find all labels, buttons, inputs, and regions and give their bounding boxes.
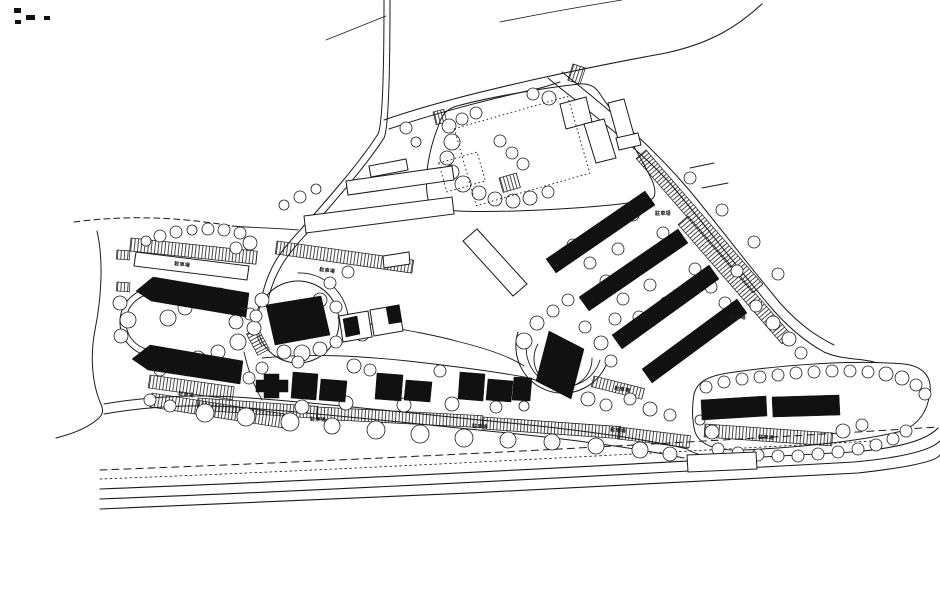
building-row-house-2a bbox=[375, 373, 403, 401]
tree-icon bbox=[256, 362, 268, 374]
tree-icon bbox=[144, 394, 156, 406]
tree-icon bbox=[164, 400, 176, 412]
building-plaza-slab bbox=[266, 296, 330, 345]
building-row-house-4 bbox=[512, 377, 532, 401]
tree-icon bbox=[470, 107, 482, 119]
tree-icon bbox=[442, 119, 456, 133]
tree-icon bbox=[731, 265, 743, 277]
tree-icon bbox=[579, 321, 591, 333]
tree-icon bbox=[862, 366, 874, 378]
tree-icon bbox=[506, 147, 518, 159]
tree-icon bbox=[530, 316, 544, 330]
tree-icon bbox=[187, 225, 197, 235]
tree-icon bbox=[870, 439, 882, 451]
tree-icon bbox=[700, 381, 712, 393]
tree-icon bbox=[544, 434, 560, 450]
tree-icon bbox=[879, 367, 893, 381]
building-row-house-1a bbox=[291, 372, 318, 400]
parking-strip-crosswalk-2 bbox=[568, 64, 586, 84]
tree-icon bbox=[624, 393, 636, 405]
tree-icon bbox=[243, 236, 257, 250]
tree-icon bbox=[736, 373, 748, 385]
tree-icon bbox=[364, 364, 376, 376]
building-row-house-2b bbox=[404, 380, 432, 402]
building-slab-west-1 bbox=[136, 277, 249, 317]
tree-icon bbox=[488, 192, 502, 206]
tree-icon bbox=[519, 401, 529, 411]
tree-icon bbox=[500, 432, 516, 448]
corner-mark bbox=[15, 20, 21, 24]
building-outline-right-small-rect bbox=[687, 452, 757, 472]
tree-icon bbox=[347, 359, 361, 373]
tree-icon bbox=[243, 372, 255, 384]
tree-icon bbox=[490, 401, 502, 413]
tree-icon bbox=[581, 392, 595, 406]
tree-icon bbox=[247, 321, 261, 335]
road-top-left-line bbox=[326, 16, 386, 40]
tree-icon bbox=[218, 224, 230, 236]
building-outline-school-3 bbox=[608, 99, 634, 139]
tree-icon bbox=[750, 300, 762, 312]
tree-icon bbox=[456, 113, 468, 125]
tree-icon bbox=[664, 409, 676, 421]
tree-icon bbox=[716, 204, 728, 216]
building-outline-slab-outline-a bbox=[304, 197, 454, 233]
building-center-block-a bbox=[343, 316, 360, 337]
tree-icon bbox=[772, 450, 784, 462]
tree-icon bbox=[400, 122, 412, 134]
parking-strip-crosswalk-5 bbox=[116, 282, 130, 292]
tree-icon bbox=[632, 442, 648, 458]
tree-icon bbox=[812, 448, 824, 460]
tree-icon bbox=[617, 293, 629, 305]
building-right-slab-2 bbox=[772, 395, 840, 417]
tree-icon bbox=[277, 345, 291, 359]
tree-icon bbox=[250, 310, 262, 322]
tree-icon bbox=[856, 419, 868, 431]
tree-icon bbox=[170, 226, 182, 238]
tree-icon bbox=[772, 369, 784, 381]
tree-icon bbox=[445, 397, 459, 411]
road-ne-upper-line bbox=[500, 0, 622, 22]
tree-icon bbox=[772, 268, 784, 280]
parking-label: 駐車場 bbox=[655, 210, 671, 217]
building-slab-west-2 bbox=[132, 345, 243, 384]
tree-icon bbox=[294, 191, 306, 203]
tree-icon bbox=[643, 402, 657, 416]
tree-icon bbox=[766, 316, 780, 330]
tree-icon bbox=[562, 294, 574, 306]
tree-icon bbox=[594, 336, 608, 350]
tree-icon bbox=[600, 399, 612, 411]
parking-strip-hatch bbox=[568, 64, 586, 84]
tree-icon bbox=[584, 257, 596, 269]
tree-icon bbox=[852, 443, 864, 455]
tree-icon bbox=[113, 296, 127, 310]
parking-label: 駐車場 bbox=[310, 416, 326, 424]
tree-icon bbox=[295, 400, 309, 414]
tree-icon bbox=[411, 425, 429, 443]
tree-icon bbox=[114, 329, 128, 343]
parking-label: 駐車場 bbox=[472, 423, 488, 431]
tree-icon bbox=[748, 236, 760, 248]
tree-icon bbox=[605, 355, 617, 367]
building-point-house bbox=[256, 374, 288, 398]
tree-icon bbox=[160, 310, 176, 326]
building-center-block-b bbox=[386, 305, 402, 324]
tree-icon bbox=[792, 450, 804, 462]
tree-icon bbox=[684, 172, 696, 184]
tree-icon bbox=[229, 315, 243, 329]
tree-icon bbox=[644, 279, 656, 291]
parking-strip-hatch bbox=[499, 173, 520, 192]
tree-icon bbox=[790, 367, 802, 379]
tree-icon bbox=[230, 334, 246, 350]
tree-icon bbox=[230, 242, 242, 254]
tree-icon bbox=[234, 227, 246, 239]
tree-icon bbox=[324, 277, 336, 289]
tree-icon bbox=[919, 388, 931, 400]
tree-icon bbox=[718, 376, 730, 388]
tree-icon bbox=[367, 421, 385, 439]
building-right-slab-1 bbox=[701, 396, 767, 420]
road-west-boundary bbox=[56, 231, 103, 438]
tree-icon bbox=[281, 413, 299, 431]
road-ne-road-b bbox=[562, 72, 834, 345]
tree-icon bbox=[910, 379, 922, 391]
tree-icon bbox=[782, 332, 796, 346]
tree-icon bbox=[154, 230, 166, 242]
tree-icon bbox=[202, 223, 214, 235]
parking-strip-hatch bbox=[116, 282, 130, 292]
tree-icon bbox=[342, 266, 354, 278]
tree-icon bbox=[795, 347, 807, 359]
corner-marks-layer bbox=[14, 8, 50, 24]
tree-icon bbox=[440, 151, 454, 165]
tree-icon bbox=[527, 88, 539, 100]
tree-icon bbox=[609, 313, 621, 325]
tree-icon bbox=[832, 446, 844, 458]
tree-icon bbox=[141, 236, 151, 246]
building-outline-school-2 bbox=[584, 119, 616, 163]
parking-strip-south-4 bbox=[618, 427, 691, 448]
tree-icon bbox=[895, 371, 909, 385]
tree-icon bbox=[434, 365, 446, 377]
tree-icon bbox=[754, 371, 766, 383]
road-highway-3 bbox=[100, 455, 940, 509]
tree-icon bbox=[196, 404, 214, 422]
tree-icon bbox=[311, 184, 321, 194]
road-ne-dash-2 bbox=[702, 183, 728, 188]
parking-label: 駐車場 bbox=[730, 314, 746, 321]
tree-icon bbox=[542, 186, 554, 198]
tree-icon bbox=[330, 336, 342, 348]
tree-icon bbox=[292, 356, 304, 368]
tree-icon bbox=[494, 135, 506, 147]
tree-icon bbox=[279, 200, 289, 210]
parking-strip-hatch bbox=[116, 250, 130, 260]
tree-icon bbox=[506, 194, 520, 208]
tree-icon bbox=[517, 158, 529, 170]
tree-icon bbox=[237, 408, 255, 426]
solid-buildings-layer bbox=[132, 191, 840, 420]
parking-label: 駐車場 bbox=[758, 434, 774, 442]
parking-strip-crosswalk-4 bbox=[116, 250, 130, 260]
tree-icon bbox=[411, 137, 421, 147]
tree-icon bbox=[808, 366, 820, 378]
building-outline-diagonal-outline bbox=[463, 229, 527, 296]
corner-mark bbox=[14, 8, 21, 13]
tree-icon bbox=[836, 424, 850, 438]
tree-icon bbox=[120, 312, 136, 328]
corner-mark bbox=[26, 15, 35, 20]
tree-icon bbox=[705, 425, 719, 439]
tree-icon bbox=[844, 365, 856, 377]
tree-icon bbox=[455, 429, 473, 447]
building-row-house-1b bbox=[319, 379, 347, 402]
site-plan-drawing: 駐車場駐車場駐車場駐車場駐車場駐車場駐車場駐車場駐車場駐車場 bbox=[0, 0, 940, 600]
tree-icon bbox=[612, 243, 624, 255]
tree-icon bbox=[900, 425, 912, 437]
corner-mark bbox=[44, 16, 50, 20]
tree-icon bbox=[324, 418, 340, 434]
tree-icon bbox=[887, 433, 899, 445]
site-plan-page: 駐車場駐車場駐車場駐車場駐車場駐車場駐車場駐車場駐車場駐車場 bbox=[0, 0, 940, 600]
tree-icon bbox=[588, 438, 604, 454]
parking-label: 駐車場 bbox=[610, 426, 626, 434]
tree-icon bbox=[826, 365, 838, 377]
building-row-house-3b bbox=[486, 379, 513, 402]
road-ne-dash-1 bbox=[690, 163, 714, 168]
parking-label: 駐車場 bbox=[319, 266, 336, 275]
tree-icon bbox=[313, 342, 327, 356]
parking-strip-hatch bbox=[618, 427, 691, 448]
tree-icon bbox=[455, 176, 471, 192]
tree-icon bbox=[663, 447, 677, 461]
parking-strip-field-corner bbox=[499, 173, 520, 192]
tree-icon bbox=[330, 301, 342, 313]
building-row-house-3a bbox=[458, 372, 485, 401]
tree-icon bbox=[547, 305, 559, 317]
tree-icon bbox=[523, 191, 537, 205]
tree-icon bbox=[516, 333, 532, 349]
